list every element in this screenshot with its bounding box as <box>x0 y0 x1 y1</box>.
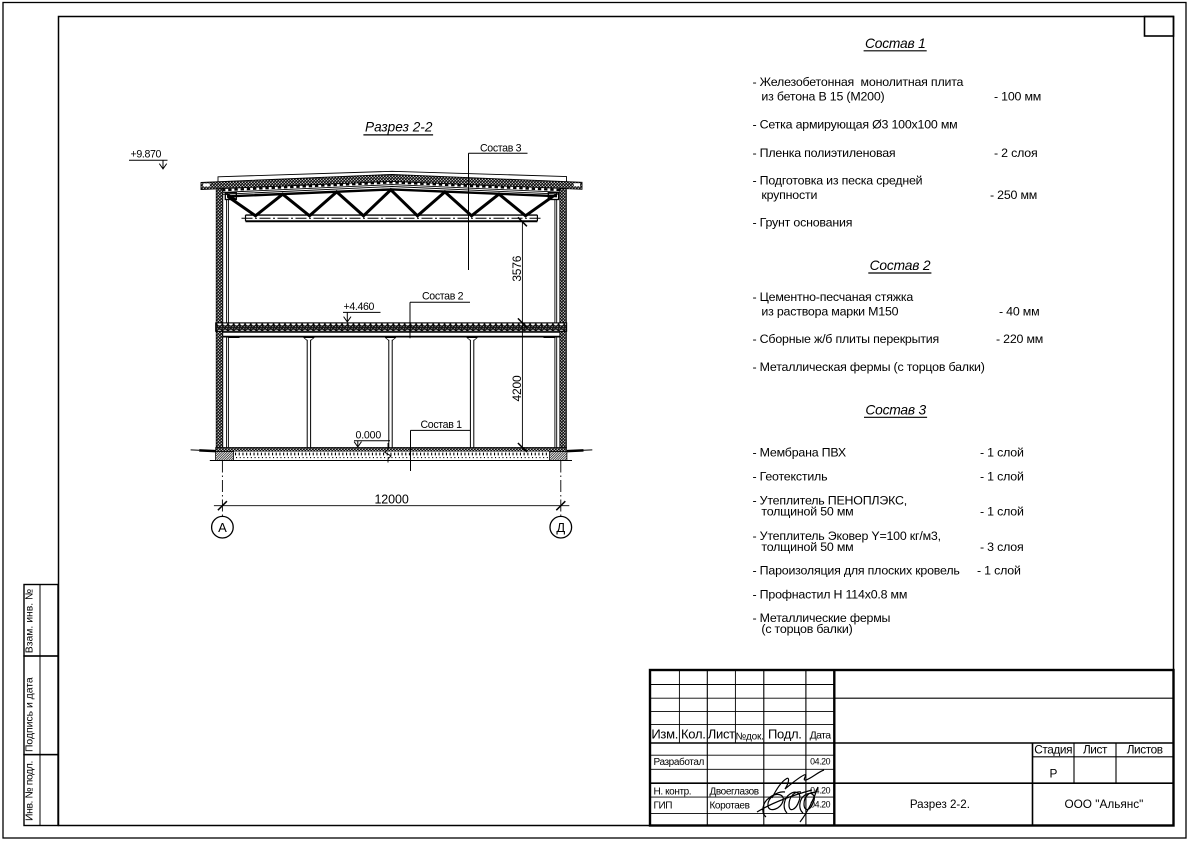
svg-text:- Пароизоляция для плоских кро: - Пароизоляция для плоских кровель <box>753 563 960 577</box>
svg-text:- Мембрана ПВХ: - Мембрана ПВХ <box>753 446 846 460</box>
svg-text:Изм.: Изм. <box>651 727 678 742</box>
svg-text:- Железобетонная монолитная п: - Железобетонная монолитная плита <box>753 75 964 89</box>
svg-text:крупности: крупности <box>761 188 817 202</box>
svg-text:Разработал: Разработал <box>654 756 705 768</box>
svg-text:4200: 4200 <box>510 375 524 401</box>
svg-text:Н. контр.: Н. контр. <box>654 786 692 797</box>
svg-text:Состав 1: Состав 1 <box>865 36 926 51</box>
svg-text:- Сборные ж/б плиты перекрытия: - Сборные ж/б плиты перекрытия <box>753 332 940 346</box>
svg-text:Лист: Лист <box>1083 743 1108 757</box>
svg-text:- Подготовка из песка средней: - Подготовка из песка средней <box>753 174 923 188</box>
svg-text:Состав 2: Состав 2 <box>422 291 464 303</box>
svg-text:№док.: №док. <box>735 732 763 743</box>
svg-text:Листов: Листов <box>1127 743 1163 757</box>
svg-text:Подпись и дата: Подпись и дата <box>25 677 36 752</box>
svg-text:толщиной 50 мм: толщиной 50 мм <box>761 505 853 519</box>
svg-text:Подл.: Подл. <box>768 727 802 742</box>
svg-text:04.20: 04.20 <box>810 800 831 810</box>
svg-text:- Грунт основания: - Грунт основания <box>753 216 853 230</box>
svg-text:- 2 слоя: - 2 слоя <box>994 146 1037 160</box>
svg-text:- Цементно-песчаная стяжка: - Цементно-песчаная стяжка <box>753 290 914 304</box>
svg-text:Состав 1: Состав 1 <box>421 419 463 431</box>
svg-text:из бетона В 15 (М200): из бетона В 15 (М200) <box>761 89 884 103</box>
svg-text:+9.870: +9.870 <box>131 149 162 161</box>
svg-text:- 1 слой: - 1 слой <box>980 446 1024 460</box>
svg-text:- 1 слой: - 1 слой <box>980 505 1024 519</box>
svg-text:Состав 3: Состав 3 <box>480 142 522 154</box>
svg-text:- 100 мм: - 100 мм <box>994 89 1041 103</box>
svg-text:Лист: Лист <box>708 727 735 742</box>
svg-text:А: А <box>218 520 227 535</box>
svg-text:Состав 2: Состав 2 <box>870 258 931 273</box>
svg-text:- 1 слой: - 1 слой <box>980 470 1024 484</box>
svg-text:- 3 слоя: - 3 слоя <box>980 540 1023 554</box>
svg-text:12000: 12000 <box>374 492 408 506</box>
svg-text:- 250 мм: - 250 мм <box>990 188 1037 202</box>
svg-text:Инв. № подл.: Инв. № подл. <box>25 761 36 821</box>
svg-text:Состав 3: Состав 3 <box>865 403 926 418</box>
svg-text:ГИП: ГИП <box>654 800 673 811</box>
svg-text:- Профнастил Н 114х0.8 мм: - Профнастил Н 114х0.8 мм <box>753 587 908 601</box>
svg-text:из раствора марки М150: из раствора марки М150 <box>761 304 898 318</box>
svg-text:(с торцов балки): (с торцов балки) <box>761 622 852 636</box>
svg-text:Кол.: Кол. <box>681 727 706 742</box>
svg-text:0.000: 0.000 <box>356 429 382 441</box>
svg-text:+4.460: +4.460 <box>344 301 375 313</box>
svg-text:Разрез 2-2.: Разрез 2-2. <box>910 798 970 811</box>
svg-text:- Металлическая фермы (с торцо: - Металлическая фермы (с торцов балки) <box>753 360 985 374</box>
svg-text:- Геотекстиль: - Геотекстиль <box>753 470 828 484</box>
svg-text:- 1 слой: - 1 слой <box>977 563 1021 577</box>
svg-text:ООО "Альянс": ООО "Альянс" <box>1064 797 1143 811</box>
svg-text:3576: 3576 <box>510 255 524 281</box>
svg-text:- 40 мм: - 40 мм <box>999 304 1039 318</box>
svg-text:Коротаев: Коротаев <box>710 800 750 811</box>
svg-text:04.20: 04.20 <box>810 756 831 766</box>
svg-text:Двоеглазов: Двоеглазов <box>710 786 759 797</box>
svg-text:- 220 мм: - 220 мм <box>996 332 1043 346</box>
svg-text:Взам. инв. №: Взам. инв. № <box>25 589 36 653</box>
svg-text:Разрез 2-2: Разрез 2-2 <box>365 120 433 135</box>
svg-text:толщиной 50 мм: толщиной 50 мм <box>761 540 853 554</box>
svg-text:Стадия: Стадия <box>1034 743 1072 757</box>
svg-text:Дата: Дата <box>810 730 832 742</box>
svg-text:- Пленка полиэтиленовая: - Пленка полиэтиленовая <box>753 146 896 160</box>
svg-text:Р: Р <box>1049 767 1057 781</box>
svg-text:- Сетка армирующая Ø3 100х100: - Сетка армирующая Ø3 100х100 мм <box>753 117 958 131</box>
svg-text:Д: Д <box>556 520 565 535</box>
